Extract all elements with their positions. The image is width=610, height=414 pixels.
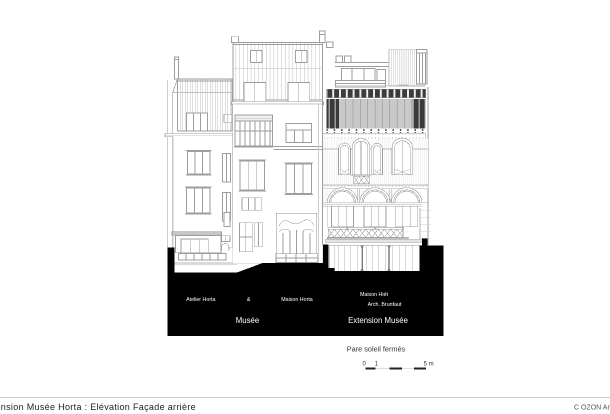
svg-text:5 m: 5 m (424, 362, 434, 368)
svg-text:Pare soleil fermés: Pare soleil fermés (347, 345, 406, 354)
svg-text:C OZON Architecture: C OZON Architecture (574, 405, 610, 412)
svg-text:Extension Musée Horta : Elévat: Extension Musée Horta : Elévation Façade… (0, 402, 196, 412)
svg-text:Maison Horta: Maison Horta (281, 297, 313, 303)
svg-text:Musée: Musée (236, 316, 259, 325)
svg-text:Extension Musée: Extension Musée (348, 316, 408, 325)
svg-text:&: & (247, 297, 251, 303)
svg-text:Atelier Horta: Atelier Horta (186, 297, 215, 303)
svg-text:Maison Hiét: Maison Hiét (360, 292, 388, 298)
svg-text:Arch. Brunfaut: Arch. Brunfaut (368, 302, 402, 308)
